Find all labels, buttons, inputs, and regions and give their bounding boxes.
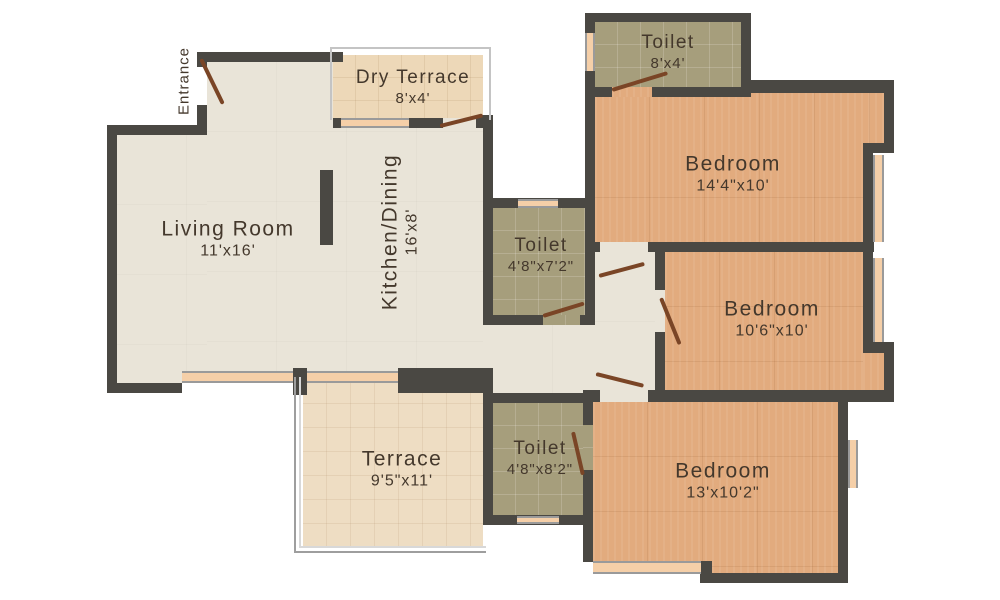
wall: [863, 143, 894, 153]
wall: [107, 125, 207, 135]
wall: [585, 13, 751, 22]
room-dims: 4'8"x7'2": [508, 258, 574, 275]
room-dims: 16'x8': [404, 154, 422, 310]
room-dims: 11'x16': [161, 243, 294, 261]
terrace-label: Terrace 9'5"x11': [362, 448, 443, 491]
room-dims: 14'4"x10': [685, 178, 781, 196]
room-name: Living Room: [161, 218, 294, 242]
dry-terrace-label: Dry Terrace 8'x4': [356, 67, 470, 107]
bedroom-mid-floor-2: [863, 353, 884, 390]
doorway: [543, 315, 580, 325]
room-dims: 13'x10'2": [675, 485, 771, 503]
wall: [863, 153, 873, 252]
room-dims: 10'6"x10': [724, 323, 820, 341]
room-name: Terrace: [362, 448, 443, 472]
wall: [710, 573, 848, 583]
room-name: Kitchen/Dining: [379, 154, 403, 310]
window: [873, 258, 884, 342]
doorway: [600, 242, 648, 252]
room-dims: 9'5"x11': [362, 473, 443, 491]
room-dims: 8'x4': [641, 55, 694, 72]
bedroom-top-floor: [595, 93, 884, 143]
bedroom-top-label: Bedroom 14'4"x10': [685, 153, 781, 196]
wall: [585, 87, 751, 97]
room-dims: 8'x4': [356, 90, 470, 107]
kitchen-dining-label: Kitchen/Dining 16'x8': [379, 154, 422, 310]
bedroom-bottom-label: Bedroom 13'x10'2": [675, 460, 771, 503]
wall: [648, 390, 894, 402]
wall: [863, 252, 873, 347]
room-name: Toilet: [641, 32, 694, 54]
room-name: Dry Terrace: [356, 67, 470, 89]
window: [848, 440, 858, 488]
bedroom-mid-label: Bedroom 10'6"x10': [724, 298, 820, 341]
doorway: [600, 390, 648, 402]
window: [873, 155, 884, 242]
window: [517, 516, 559, 524]
doorway: [583, 425, 593, 470]
wall: [585, 97, 595, 252]
wall: [648, 242, 874, 252]
hallway-floor: [483, 325, 595, 393]
wall: [655, 252, 665, 290]
wall: [741, 80, 894, 93]
wall: [838, 402, 848, 583]
wall: [197, 52, 343, 62]
wall: [700, 561, 712, 583]
wall: [320, 170, 333, 245]
entrance-label: Entrance: [176, 47, 193, 115]
room-dims: 4'8"x8'2": [507, 461, 573, 478]
wall: [483, 115, 493, 208]
wall: [483, 393, 593, 403]
window: [585, 33, 595, 71]
wall: [107, 383, 182, 393]
floor-plan: Entrance Living Room 11'x16' Kitchen/Din…: [0, 0, 1000, 600]
toilet-mid-label: Toilet 4'8"x7'2": [508, 235, 574, 275]
wall: [585, 242, 600, 252]
living-room-label: Living Room 11'x16': [161, 218, 294, 261]
entrance-text: Entrance: [176, 47, 193, 115]
window: [182, 371, 293, 383]
toilet-top-label: Toilet 8'x4': [641, 32, 694, 72]
room-name: Toilet: [507, 438, 573, 460]
room-name: Toilet: [508, 235, 574, 257]
room-name: Bedroom: [675, 460, 771, 484]
wall: [107, 125, 117, 393]
wall: [655, 332, 665, 390]
wall: [483, 198, 493, 325]
window: [518, 199, 558, 208]
room-name: Bedroom: [724, 298, 820, 322]
room-name: Bedroom: [685, 153, 781, 177]
window: [593, 561, 701, 574]
toilet-bottom-label: Toilet 4'8"x8'2": [507, 438, 573, 478]
